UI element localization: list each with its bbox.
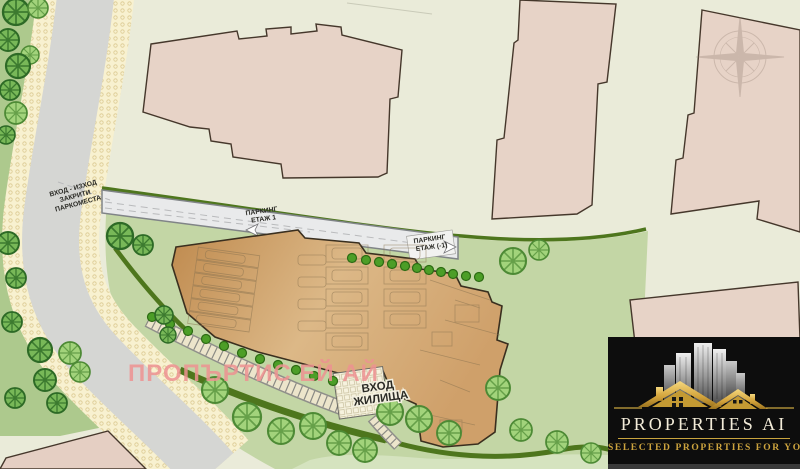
tree-icon	[5, 102, 27, 124]
bush-icon	[462, 272, 471, 281]
tree-icon	[59, 342, 81, 364]
tree-icon	[529, 240, 549, 260]
tree-icon	[300, 413, 326, 439]
tree-icon	[327, 431, 351, 455]
tree-icon	[0, 126, 15, 144]
tree-icon	[6, 268, 26, 288]
bush-icon	[184, 327, 193, 336]
tree-icon	[47, 393, 67, 413]
tree-icon	[34, 369, 56, 391]
tree-icon	[581, 443, 601, 463]
bush-icon	[437, 268, 446, 277]
bush-icon	[413, 264, 422, 273]
tree-icon	[3, 0, 29, 25]
tree-icon	[155, 306, 173, 324]
logo-divider	[618, 438, 790, 439]
tree-icon	[6, 54, 30, 78]
bush-icon	[475, 273, 484, 282]
bush-icon	[375, 258, 384, 267]
bush-icon	[362, 256, 371, 265]
watermark-text: ПРОПЪРТИС ЕЙ АЙ	[128, 359, 379, 387]
tree-icon	[406, 406, 432, 432]
bush-icon	[348, 254, 357, 263]
tree-icon	[160, 327, 176, 343]
tree-icon	[268, 418, 294, 444]
tree-icon	[0, 29, 19, 51]
bush-icon	[425, 266, 434, 275]
logo-tagline: SELECTED PROPERTIES FOR YOU	[608, 443, 800, 453]
logo-box: PROPERTIES AI SELECTED PROPERTIES FOR YO…	[608, 337, 800, 469]
tree-icon	[233, 403, 261, 431]
bush-icon	[220, 342, 229, 351]
tree-icon	[70, 362, 90, 382]
tree-icon	[500, 248, 526, 274]
tree-icon	[437, 421, 461, 445]
tree-icon	[353, 438, 377, 462]
tree-icon	[133, 235, 153, 255]
tree-icon	[546, 431, 568, 453]
bush-icon	[238, 349, 247, 358]
tree-icon	[0, 80, 20, 100]
tree-icon	[510, 419, 532, 441]
site-plan: ВХОД - ИЗХОД ЗАКРИТИ ПАРКОМЕСТА ПАРКИНГ …	[0, 0, 800, 469]
tree-icon	[2, 312, 22, 332]
bush-icon	[449, 270, 458, 279]
logo-skyline-icon	[608, 337, 800, 413]
bush-icon	[388, 260, 397, 269]
tree-icon	[5, 388, 25, 408]
tree-icon	[0, 232, 19, 254]
tree-icon	[107, 223, 133, 249]
logo-brand: PROPERTIES AI	[608, 415, 800, 433]
tree-icon	[28, 0, 48, 18]
bush-icon	[401, 262, 410, 271]
tree-icon	[486, 376, 510, 400]
tree-icon	[28, 338, 52, 362]
bush-icon	[202, 335, 211, 344]
